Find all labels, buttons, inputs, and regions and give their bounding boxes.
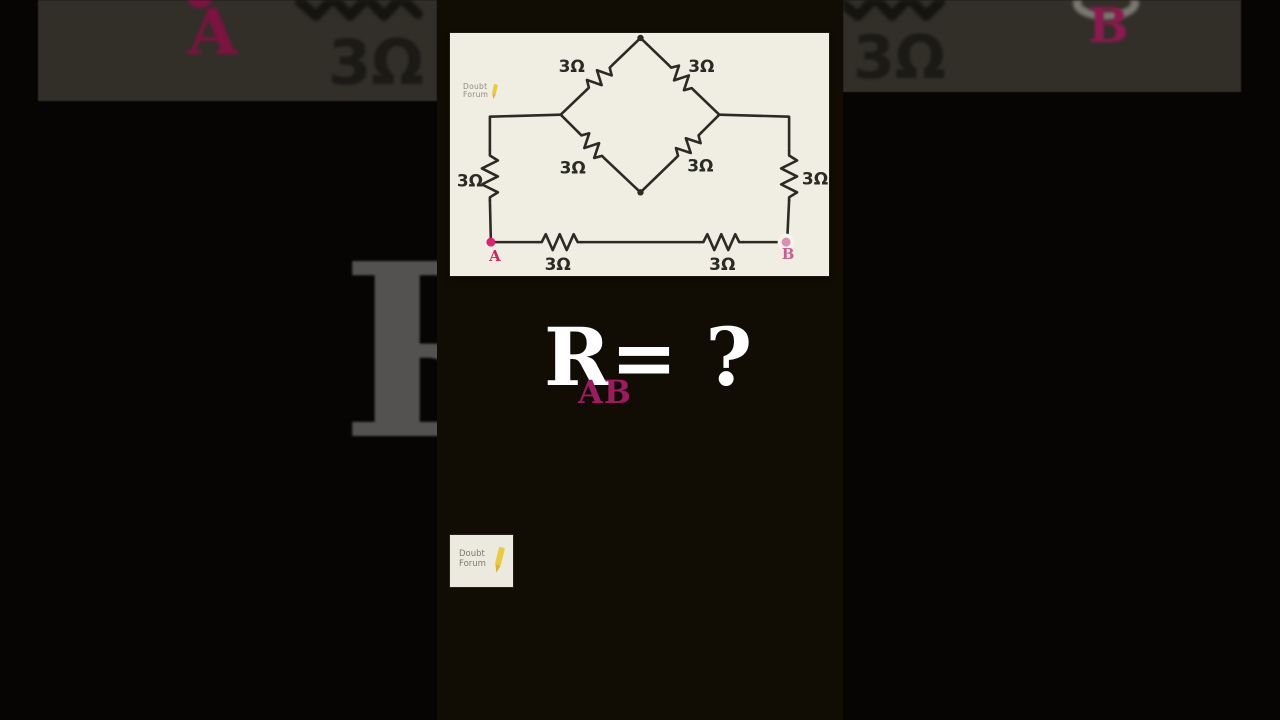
resistor-label-left-rail: 3Ω (457, 170, 483, 190)
circuit-diagram: 3Ω 3Ω 3Ω 3Ω 3Ω 3Ω 3Ω 3Ω A B (450, 33, 829, 276)
resistor-label-bottom-left: 3Ω (545, 254, 571, 274)
letterbox-left: A 3Ω R (0, 0, 437, 720)
pencil-icon (490, 83, 499, 100)
background-resistor-label-left: 3Ω (328, 26, 424, 99)
circuit-diagram-card: 3Ω 3Ω 3Ω 3Ω 3Ω 3Ω 3Ω 3Ω A B Doubt Forum (450, 33, 829, 276)
background-band-right: 3Ω B (843, 0, 1241, 92)
question-subscript: AB (578, 376, 632, 408)
video-frame[interactable]: A 3Ω R 3Ω B (0, 0, 1280, 720)
logo-text: Doubt Forum (459, 549, 486, 569)
terminal-a-label: A (488, 247, 501, 265)
resistor-label-bottom-right: 3Ω (709, 254, 735, 274)
logo-line2: Forum (459, 559, 486, 569)
background-band-left: A 3Ω (38, 0, 437, 101)
node-dot-bottom (637, 189, 643, 195)
watermark: Doubt Forum (463, 83, 488, 99)
terminal-b-label: B (782, 245, 795, 263)
background-resistor-label-right: 3Ω (853, 23, 946, 92)
node-dot-top (637, 35, 643, 41)
resistor-label-right-rail: 3Ω (802, 168, 828, 188)
letterbox-right: 3Ω B (843, 0, 1280, 720)
video-content-column: 3Ω 3Ω 3Ω 3Ω 3Ω 3Ω 3Ω 3Ω A B Doubt Forum (437, 0, 843, 720)
question-expression: R= ? AB (544, 317, 752, 397)
logo-line1: Doubt (459, 549, 486, 559)
resistor-label-mid-right: 3Ω (687, 155, 713, 175)
resistor-label-mid-left: 3Ω (560, 157, 586, 177)
pencil-icon (492, 545, 506, 575)
logo-card: Doubt Forum (450, 535, 513, 587)
resistor-label-top-left: 3Ω (559, 56, 585, 76)
resistor-label-top-right: 3Ω (688, 56, 714, 76)
terminal-a-dot (486, 238, 495, 247)
background-big-letter: R (341, 232, 437, 472)
background-terminal-b-label: B (1088, 0, 1129, 54)
watermark-line2: Forum (463, 91, 488, 99)
